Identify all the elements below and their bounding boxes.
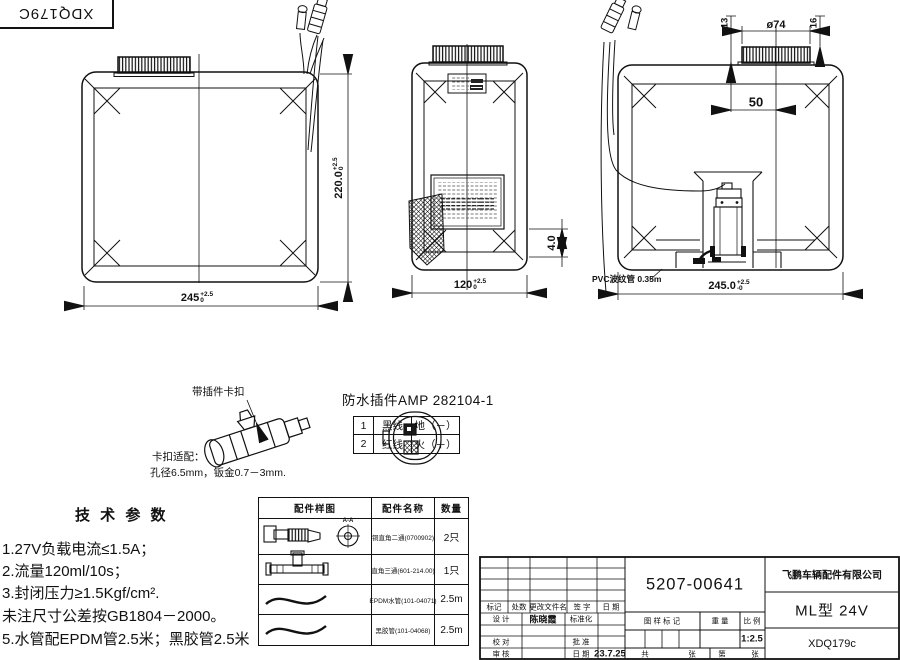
tech-param-line: 2.流量120ml/10s； — [2, 560, 129, 581]
part-sample-cell — [259, 519, 372, 555]
section-label: A-A — [343, 518, 354, 524]
connector-title: 防水插件AMP 282104-1 — [342, 389, 494, 409]
part-sample-cell — [259, 615, 372, 645]
part-qty: 1只 — [435, 555, 468, 585]
parts-table: 配件样图 配件名称 数量 铜直角二通(0700902) 2只 直角三通(601-… — [258, 497, 469, 646]
product-model: ML型 24V — [795, 600, 869, 621]
side-view — [409, 44, 568, 298]
tech-param-line: 未注尺寸公差按GB1804－2000。 — [2, 605, 225, 626]
pin-no: 2 — [354, 435, 374, 453]
tb-designer: 陈晓霞 — [529, 613, 556, 626]
pin-no: 1 — [354, 417, 374, 435]
tb-col-count: 处数 — [512, 602, 527, 613]
connector-pin-table: 1 黑线 地（－） 2 红线 火（＋） — [353, 416, 460, 454]
tb-col-sign: 签 字 — [573, 602, 590, 613]
dim-rear-13: 13 — [720, 18, 731, 29]
drawing-number: 5207-00641 — [646, 576, 744, 595]
part-name: 铜直角二通(0700902) — [372, 519, 435, 555]
clip-fit-spec: 孔径6.5mm，钣金0.7－3mm. — [150, 465, 286, 480]
part-name: 直角三通(601-214.00) — [372, 555, 435, 585]
tb-col-mark: 标记 — [487, 602, 502, 613]
tb-design-label: 设 计 — [492, 614, 509, 625]
part-sample-cell — [259, 555, 372, 585]
clip-label: 带插件卡扣 — [192, 384, 245, 399]
dim-side-width: 120 +2.50 — [454, 279, 486, 291]
tb-total-label: 共 — [641, 649, 649, 660]
document-code-box: XDQ179C — [0, 0, 114, 29]
part-qty: 2.5m — [435, 585, 468, 615]
tb-date-value: 23.7.25 — [594, 649, 626, 660]
part-qty: 2只 — [435, 519, 468, 555]
tb-no-label: 第 — [718, 649, 726, 660]
dim-rear-16: 16 — [809, 18, 820, 29]
drawing-code: XDQ179c — [808, 638, 856, 650]
tb-scale-label: 比 例 — [743, 616, 760, 627]
part-sample-cell — [259, 585, 372, 615]
part-qty: 2.5m — [435, 615, 468, 645]
pin-polarity: 火（＋） — [412, 435, 459, 453]
part-name: EPDM水管(101-04071) — [372, 585, 435, 615]
tb-col-date: 日 期 — [602, 602, 619, 613]
parts-col-qty: 数量 — [435, 498, 468, 519]
dim-rear-50: 50 — [749, 95, 763, 110]
engineering-drawing-sheet: XDQ179C 245 +2.50 220.0 +2.50 120 +2.50 … — [0, 0, 900, 660]
company-name: 飞鹏车辆配件有限公司 — [782, 567, 882, 582]
parts-col-sample: 配件样图 — [259, 498, 372, 519]
tech-params-title: 技 术 参 数 — [75, 504, 169, 525]
document-code: XDQ179C — [18, 5, 93, 22]
part-name: 黑胶管(101-04068) — [372, 615, 435, 645]
tb-date-label: 日 期 — [572, 649, 589, 660]
dim-front-height: 220.0 +2.50 — [333, 157, 345, 198]
tb-standardize-label: 标准化 — [570, 614, 593, 625]
pin-wire: 红线 — [374, 435, 412, 453]
tb-no-unit: 张 — [751, 649, 759, 660]
tb-col-file: 更改文件名 — [529, 602, 567, 613]
tb-weight-label: 重 量 — [711, 616, 728, 627]
tech-param-line: 1.27V负载电流≤1.5A； — [2, 538, 155, 559]
dim-rear-cap-diameter: ø74 — [767, 19, 786, 31]
tb-check-label: 校 对 — [492, 637, 509, 648]
pin-wire: 黑线 — [374, 417, 412, 435]
parts-col-name: 配件名称 — [372, 498, 435, 519]
tb-audit-label: 审 核 — [492, 649, 509, 660]
tech-param-line: 3.封闭压力≥1.5Kgf/cm². — [2, 582, 159, 603]
pvc-tube-note: PVC波纹管 0.35m — [592, 273, 661, 285]
tb-approve-label: 批 准 — [572, 637, 589, 648]
rear-view — [600, 0, 843, 300]
dim-rear-width: 245.0 +2.5-0 — [708, 280, 749, 292]
dim-side-foot: 4.0 — [546, 235, 558, 250]
tb-scale-value: 1:2.5 — [741, 634, 763, 645]
front-view — [82, 0, 352, 310]
tb-mark-label: 图 样 标 记 — [644, 616, 680, 627]
clip-fit-title: 卡扣适配： — [152, 449, 205, 464]
pin-polarity: 地（－） — [412, 417, 459, 435]
tech-param-line: 5.水管配EPDM管2.5米；黑胶管2.5米 — [2, 628, 250, 649]
dim-front-width: 245 +2.50 — [181, 292, 213, 304]
tb-total-unit: 张 — [688, 649, 696, 660]
